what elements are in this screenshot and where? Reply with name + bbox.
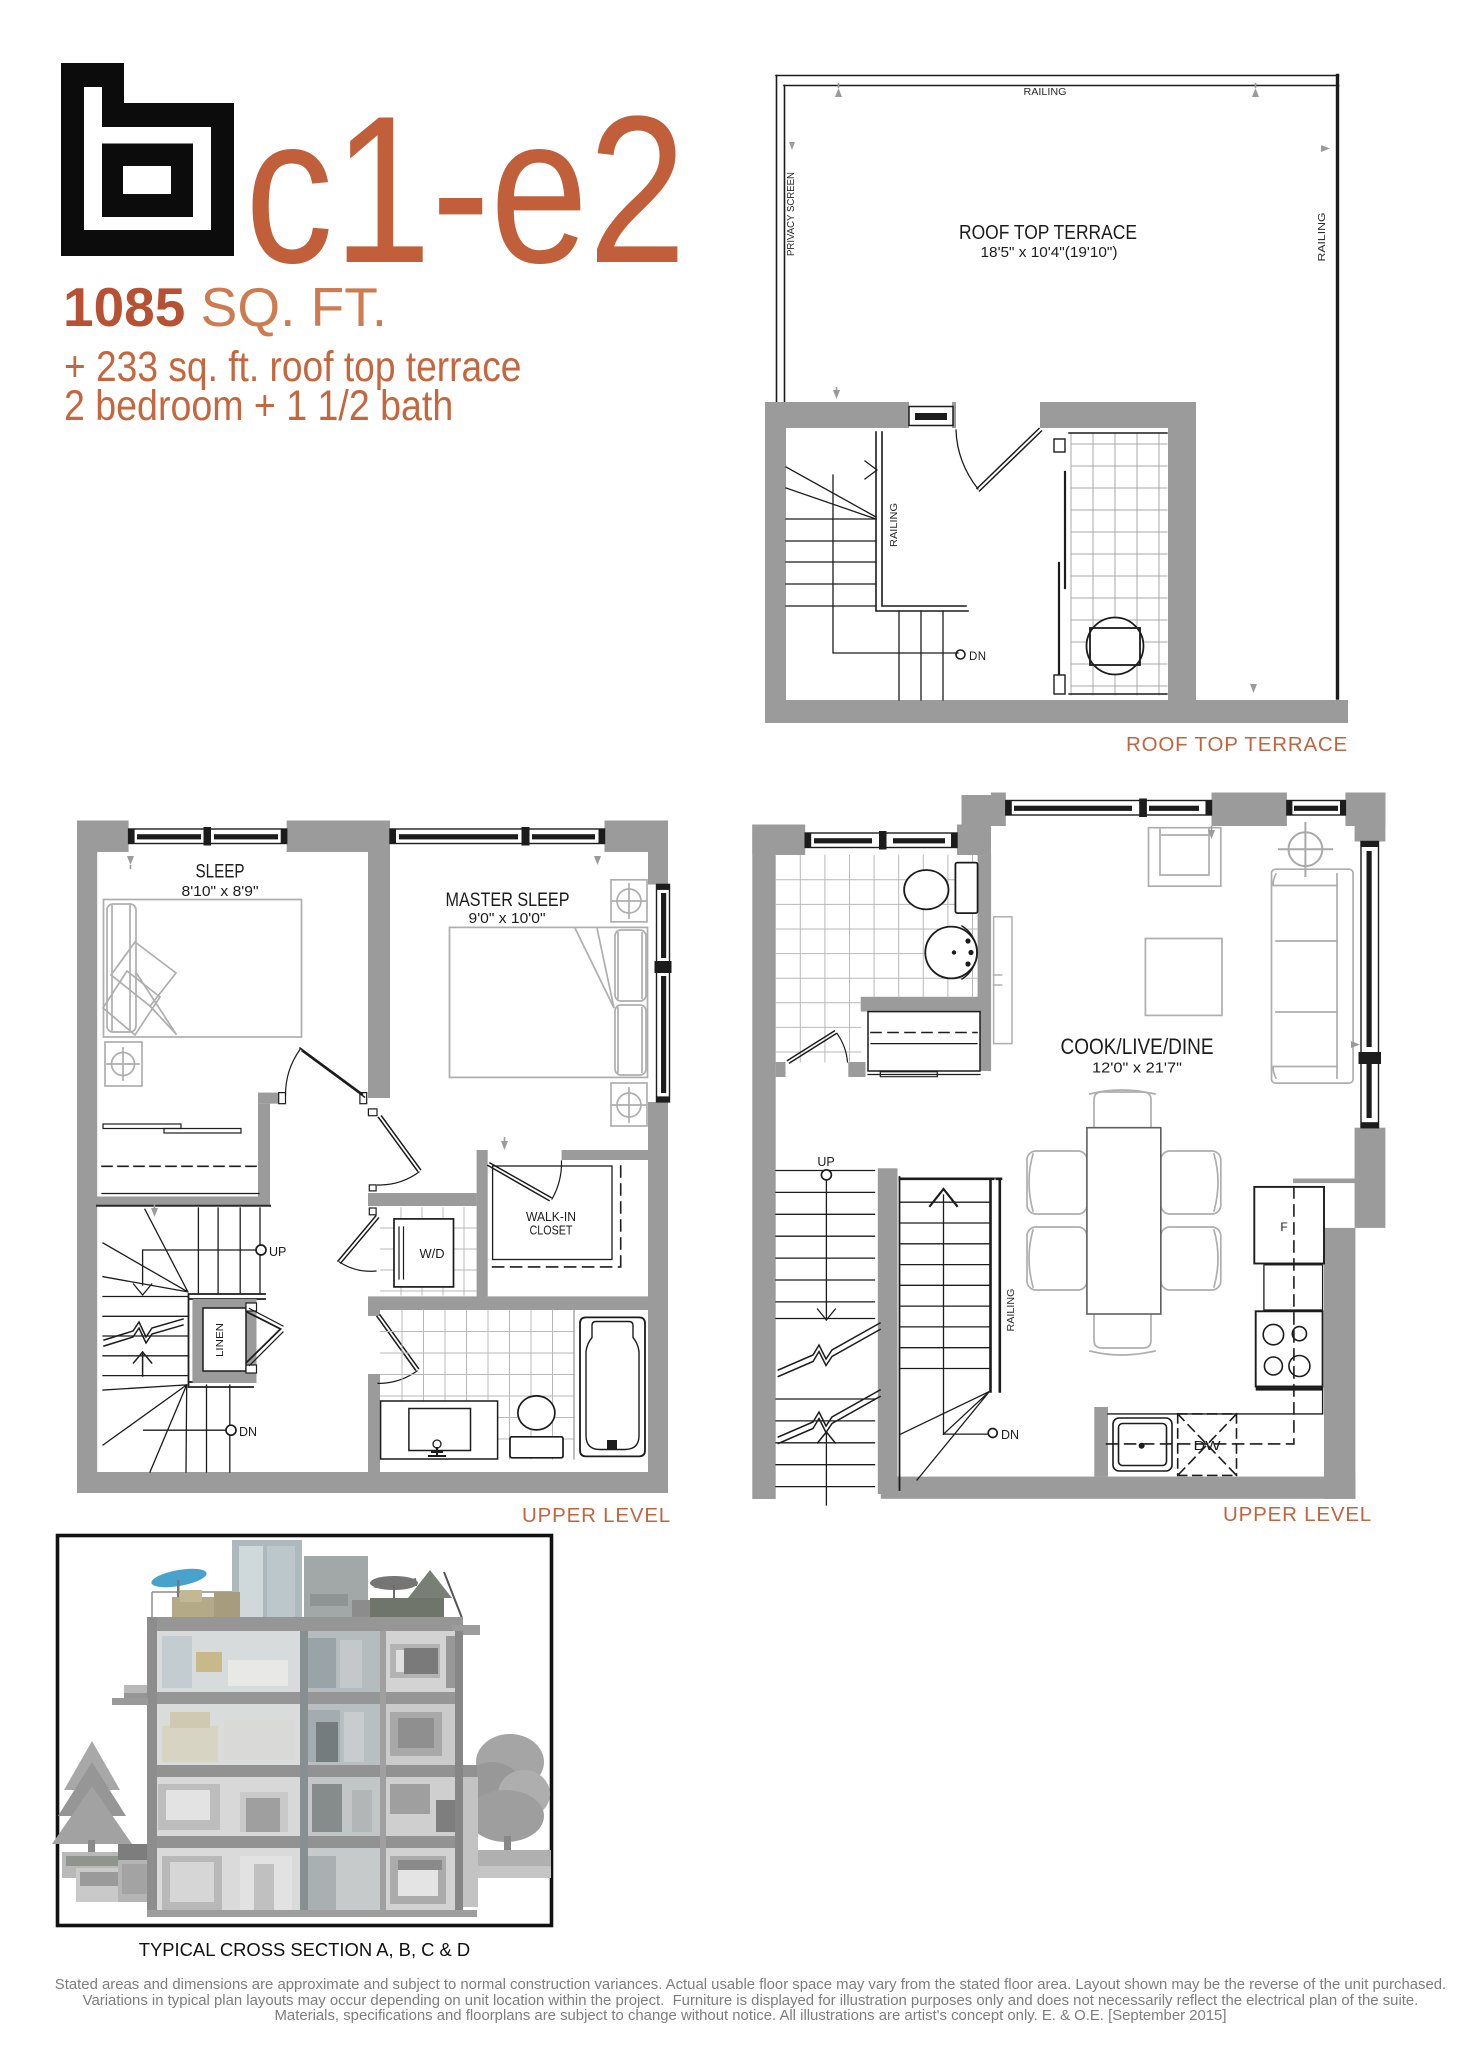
svg-text:UPPER LEVEL: UPPER LEVEL: [1223, 1503, 1372, 1526]
svg-text:RAILING: RAILING: [1024, 86, 1067, 98]
svg-text:c1-e2: c1-e2: [245, 90, 686, 300]
svg-text:18'5" x 10'4"(19'10"): 18'5" x 10'4"(19'10"): [981, 244, 1118, 261]
svg-text:RAILING: RAILING: [1005, 1289, 1017, 1332]
svg-text:DN: DN: [969, 651, 987, 663]
svg-text:9'0" x 10'0": 9'0" x 10'0": [469, 910, 546, 927]
svg-text:UP: UP: [817, 1155, 834, 1169]
svg-text:UP: UP: [269, 1245, 286, 1259]
svg-text:PRIVACY SCREEN: PRIVACY SCREEN: [785, 172, 797, 256]
svg-text:RAILING: RAILING: [888, 503, 900, 547]
svg-text:12'0" x 21'7": 12'0" x 21'7": [1092, 1060, 1182, 1077]
svg-text:COOK/LIVE/DINE: COOK/LIVE/DINE: [1061, 1034, 1214, 1059]
svg-text:RAILING: RAILING: [1316, 213, 1328, 262]
svg-text:CLOSET: CLOSET: [530, 1224, 573, 1238]
svg-text:ROOF TOP TERRACE: ROOF TOP TERRACE: [1126, 733, 1348, 756]
svg-text:ROOF TOP TERRACE: ROOF TOP TERRACE: [959, 221, 1137, 244]
svg-text:DN: DN: [1001, 1428, 1019, 1442]
svg-text:LINEN: LINEN: [214, 1323, 226, 1357]
svg-text:DN: DN: [239, 1425, 257, 1439]
svg-text:DW: DW: [1194, 1439, 1221, 1453]
svg-text:SLEEP: SLEEP: [196, 862, 245, 883]
svg-text:WALK-IN: WALK-IN: [526, 1210, 576, 1224]
svg-text:F: F: [1280, 1220, 1287, 1234]
svg-text:UPPER LEVEL: UPPER LEVEL: [522, 1504, 671, 1527]
svg-text:W/D: W/D: [420, 1247, 445, 1261]
svg-text:MASTER SLEEP: MASTER SLEEP: [446, 890, 570, 911]
svg-text:8'10" x 8'9": 8'10" x 8'9": [182, 883, 259, 900]
